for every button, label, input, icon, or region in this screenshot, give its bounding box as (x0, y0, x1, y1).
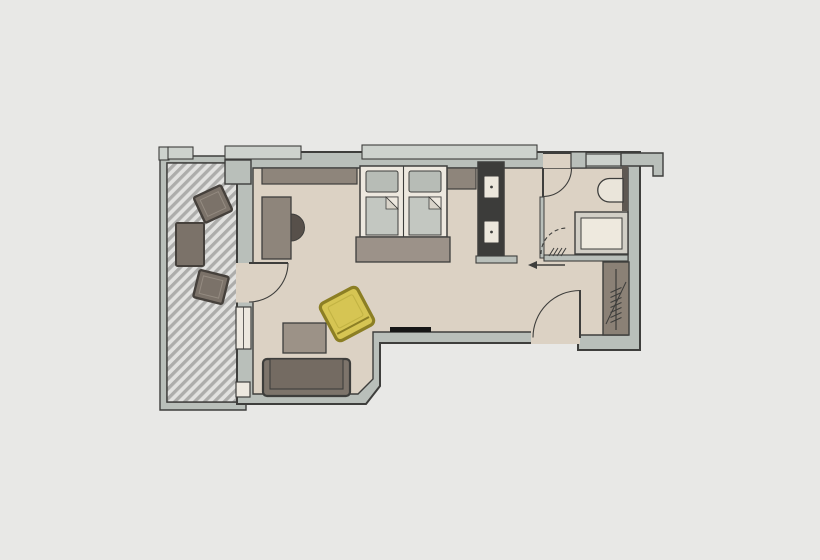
closet-knob-1 (490, 186, 493, 189)
toilet (598, 179, 623, 203)
window-stub-balcony (168, 147, 193, 159)
bathroom-door-gap (543, 153, 571, 168)
wall-pillar (571, 152, 586, 168)
window-stub-bathroom (586, 154, 621, 166)
closet-minibar (478, 162, 504, 257)
coffee-table (283, 323, 326, 353)
pillow-right (409, 171, 441, 192)
floor-plan-svg (0, 0, 820, 560)
floor-plan-page (0, 0, 820, 560)
double-bed (356, 166, 450, 262)
tv (390, 327, 431, 332)
closet-wall-stub (476, 256, 517, 263)
shower-tray (581, 218, 622, 249)
bathroom-partition (544, 255, 628, 261)
balcony-table (176, 223, 204, 266)
entry-door-gap (531, 331, 580, 344)
wardrobe (603, 262, 629, 335)
wall-pier (225, 160, 251, 184)
balcony-door-gap (236, 263, 254, 303)
pillow-left (366, 171, 398, 192)
bed-runner (356, 237, 450, 262)
sofa (263, 359, 350, 396)
window-stub-bed (362, 145, 537, 159)
window-stub-desk (225, 146, 301, 159)
wall-window-2 (236, 382, 250, 397)
sideboard-left (262, 168, 357, 184)
sideboard-right (447, 168, 476, 189)
floor-plan (0, 0, 820, 560)
shower (575, 212, 628, 254)
wall-window-1 (236, 307, 251, 349)
desk (262, 197, 291, 259)
sofa-seat (270, 359, 343, 389)
balcony-chair-2 (193, 270, 229, 304)
bathroom-left-wall (540, 197, 544, 258)
closet-knob-2 (490, 231, 493, 234)
